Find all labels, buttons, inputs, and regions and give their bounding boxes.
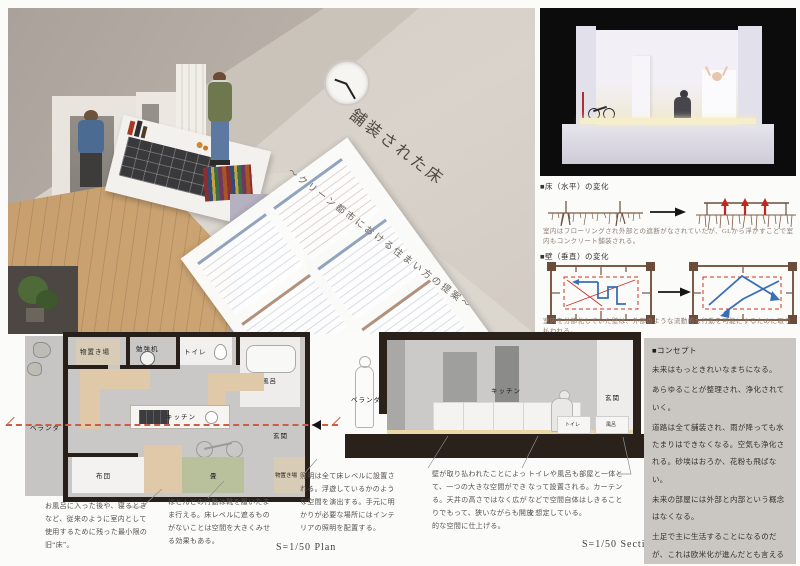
clock-minute-hand (346, 84, 356, 99)
concept-paragraph: 未来はもっときれいなまちになる。 (652, 361, 788, 378)
person-standing-jacket (208, 82, 232, 122)
annotation-shoes: ほとんどの行動は靴を履いたまま行える。床レベルに遮るものがないことは空間を大きく… (168, 496, 272, 548)
section-label-veranda: ベランダ (351, 394, 381, 404)
plan-wood-floor-bottom (144, 445, 182, 493)
concept-paragraph: 土足で主に生活することになるのだが、これは欧米化が進んだとも言えるし、日本古来の… (652, 528, 788, 564)
plan-sink-icon (205, 411, 218, 424)
plant-icon-2 (36, 290, 58, 310)
plan-label-futon: 布団 (96, 470, 111, 480)
section-label-kitchen: キッチン (491, 385, 521, 395)
toilet-icon (214, 344, 227, 360)
model-photo-image (540, 8, 796, 176)
annotation-lighting: 照明は全て床レベルに設置される。浮遊しているかのような空間を演出する。手元に明か… (300, 470, 398, 535)
concept-paragraph: あらゆることが整理され、浄化されていく。 (652, 381, 788, 416)
section-panel (443, 352, 477, 402)
plan-outline: 物置き場 勉強机 トイレ 風呂 キッチン 玄関 (63, 332, 310, 502)
plan-wall (126, 337, 130, 365)
plan-label-bath: 風呂 (262, 375, 277, 385)
plan-label-tatami: 畳 (210, 470, 218, 480)
concept-paragraph: 道路は全て舗装され、雨が降っても水たまりはできなくなる。空気も浄化される。砂埃は… (652, 419, 788, 488)
section-drawing: トイレ 風呂 ベランダ キッチン 玄関 (345, 330, 657, 464)
section-label-entrance: 玄関 (605, 392, 620, 402)
plan-stove-icon (139, 410, 169, 424)
section-ground (345, 434, 657, 458)
model-floor-glow (580, 118, 756, 124)
model-inner-pillar (632, 56, 650, 122)
bottle-amber (141, 126, 148, 139)
model-right-column (738, 26, 762, 126)
plan-plant-sketch-2 (27, 362, 42, 376)
concept-panel: ■コンセプト 未来はもっときれいなまちになる。 あらゆることが整理され、浄化され… (644, 338, 796, 564)
section-cut-line (6, 424, 338, 426)
plan-label-entrance: 玄関 (273, 430, 288, 440)
veranda-area (25, 336, 63, 496)
plan-plant-sketch (33, 342, 51, 358)
section-cut-marker (312, 420, 321, 430)
section-label-bath: 風呂 (606, 421, 616, 428)
presentation-board: 舗装された床 〜クリーン都市における住まい方の提案〜 ■床（水平）の変化 (0, 0, 800, 566)
plan-label-storage-top: 物置き場 (80, 346, 110, 356)
bathtub-icon (246, 345, 296, 373)
section-right-wall (633, 332, 641, 438)
section-label-toilet: トイレ (565, 421, 580, 428)
washing-machine-icon (140, 351, 155, 366)
model-person-waking (712, 72, 722, 81)
floor-change-description: 室内はフローリングされ外部との遮断がなされていたが、GLから浮かすことで室内もコ… (543, 227, 795, 247)
interior-render-image: 舗装された床 〜クリーン都市における住まい方の提案〜 (8, 8, 535, 334)
person-cooking-shirt (78, 120, 104, 154)
plan-wood-floor-left-2 (80, 369, 100, 429)
concept-heading: ■コンセプト (652, 345, 788, 356)
plan-label-storage-bottom: 物置き場 (275, 471, 297, 479)
person-standing-shoes (210, 160, 230, 165)
clock-icon (324, 60, 370, 106)
person-cooking-legs (80, 153, 102, 187)
section-slab (379, 332, 641, 340)
annotation-walls: 壁が取り払われたことによって、一つの大きな空間ができる。天井の高さではなく広がり… (432, 468, 534, 533)
plan-label-kitchen: キッチン (166, 411, 196, 421)
annotation-old-floor: お風呂に入った後や、寝るときなど、従来のように室内として使用するために残った最小… (45, 500, 153, 552)
person-standing-jeans (211, 121, 229, 161)
model-base (562, 124, 774, 164)
floor-plan-drawing: ベランダ 物置き場 勉強机 トイレ 風呂 キッチン (25, 330, 345, 506)
annotation-bathroom: トイレや風呂も部屋と一体となって設置される。カーテンなどで空間自体はしきることを… (528, 468, 628, 520)
plan-label-toilet: トイレ (184, 346, 207, 356)
person-cooking (74, 110, 110, 194)
section-left-band (387, 340, 405, 434)
concept-paragraph: 未来の部屋には外部と内部という概念はなくなる。 (652, 491, 788, 526)
plan-scale-label: S=1/50 Plan (276, 542, 336, 553)
plant-pot (26, 308, 44, 322)
